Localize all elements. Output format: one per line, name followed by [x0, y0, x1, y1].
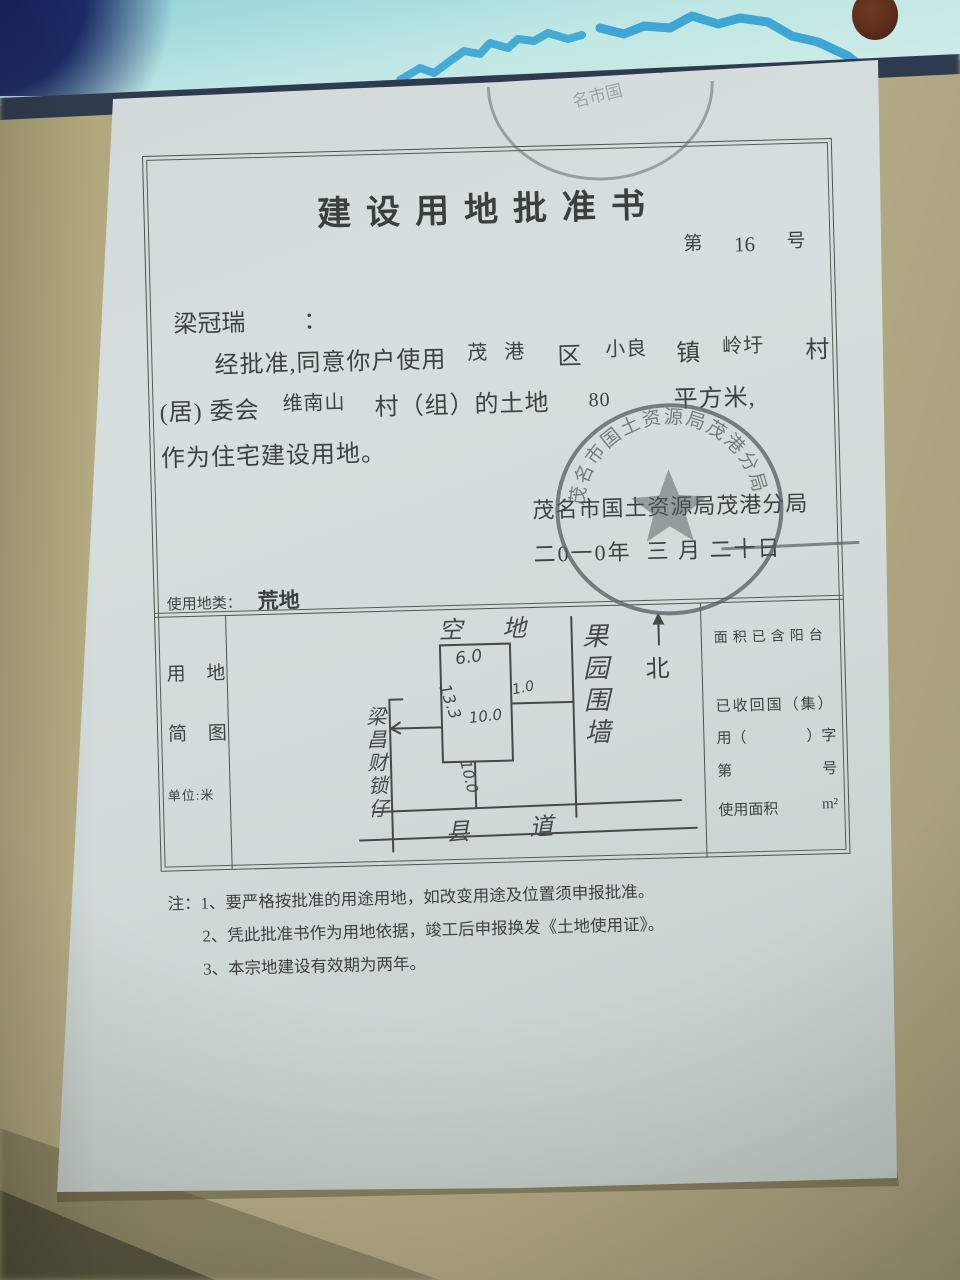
plot-diagram-section: 用 地 简 图 单位:米: [155, 599, 849, 871]
document-number: 第 16 号: [683, 226, 806, 256]
suffix-village: 村: [805, 337, 831, 364]
map-dark-corner: [0, 0, 226, 96]
used-area-label: 使用面积: [718, 798, 779, 821]
fill-district: 茂 港: [467, 341, 531, 365]
diagram-label-2: 简 图: [168, 718, 235, 747]
right-col-cert-word-row: 用（ ）字: [716, 724, 837, 748]
north-label: 北: [645, 648, 670, 684]
seal-star: [630, 468, 708, 542]
dim-left: 10.0: [468, 705, 503, 727]
partial-seal-text: 名市国: [571, 81, 625, 111]
cert-no-suffix: 号: [822, 757, 838, 778]
orchard-wall-label: 果园围墙: [574, 622, 616, 803]
document-content: 名市国 分 局 建设用地批准书 第 16 号 梁冠瑞： 经批准,同意你户使用 茂…: [142, 138, 854, 991]
right-col-cert-number-row: 第 号: [717, 757, 838, 781]
suffix-district: 区: [557, 344, 583, 371]
diagram-sketch-area: 空 地 6.0 13.3 1.0 10.0 10.0 果园围墙 梁昌财锁仔 县 …: [225, 604, 707, 869]
right-col-recovered-note: 已收回国（集）: [715, 692, 836, 716]
used-area-unit: m²: [822, 796, 839, 817]
printed-text-3: 村（组）的土地: [374, 390, 550, 421]
fill-town: 小良: [605, 338, 648, 361]
certificate-paper: 名市国 分 局 建设用地批准书 第 16 号 梁冠瑞： 经批准,同意你户使用 茂…: [0, 0, 960, 1280]
wall-offset-line: [511, 702, 573, 704]
body-line-3: 作为住宅建设用地。: [160, 433, 386, 474]
open-space-label: 空 地: [438, 608, 543, 646]
cert-word-close: ）字: [806, 724, 837, 746]
printed-text-1: 经批准,同意你户使用: [214, 347, 447, 379]
official-round-seal: 茂名市国土资源局茂港分局: [541, 390, 797, 631]
fill-village: 岭圩: [722, 335, 765, 358]
footnotes: 注：1、要严格按批准的用途用地，如改变用途及位置须申报批准。 2、凭此批准书作为…: [167, 870, 849, 987]
diagram-unit-label: 单位:米: [167, 784, 214, 804]
diagram-left-column: 用 地 简 图 单位:米: [155, 616, 232, 871]
left-offset-line: [391, 721, 442, 733]
printed-text-2: (居) 委会: [159, 398, 260, 427]
right-col-used-area-row: 使用面积 m²: [718, 796, 839, 820]
number-value: 16: [734, 232, 756, 258]
number-suffix: 号: [786, 226, 806, 253]
suffix-town: 镇: [676, 340, 702, 367]
addressee-line: 梁冠瑞：: [173, 300, 328, 339]
document-frame: 建设用地批准书 第 16 号 梁冠瑞： 经批准,同意你户使用 茂 港 区 小良 …: [142, 138, 851, 872]
diagram-label-1: 用 地: [166, 658, 233, 687]
neighbor-name-label: 梁昌财锁仔: [360, 706, 393, 867]
number-prefix: 第: [683, 228, 703, 255]
diagram-right-column: 面积已含阳台 已收回国（集） 用（ ）字 第 号 使用面积 m²: [700, 600, 850, 857]
addressee-colon: ：: [303, 308, 328, 335]
right-col-balcony-note: 面积已含阳台: [714, 624, 834, 647]
fill-hamlet: 维南山: [282, 392, 346, 416]
photo-of-land-approval-document: 名市国 分 局 建设用地批准书 第 16 号 梁冠瑞： 经批准,同意你户使用 茂…: [0, 0, 960, 1280]
note-1-text: 1、要严格按批准的用途用地，如改变用途及位置须申报批准。: [200, 882, 654, 913]
cert-word-open: 用（: [716, 726, 747, 748]
body-line-1: 经批准,同意你户使用 茂 港 区 小良 镇 岭圩 村: [214, 329, 831, 380]
dim-top: 6.0: [454, 646, 483, 669]
cert-no-prefix: 第: [717, 760, 733, 781]
addressee-name: 梁冠瑞: [173, 310, 246, 338]
note-label: 注：: [167, 894, 200, 914]
